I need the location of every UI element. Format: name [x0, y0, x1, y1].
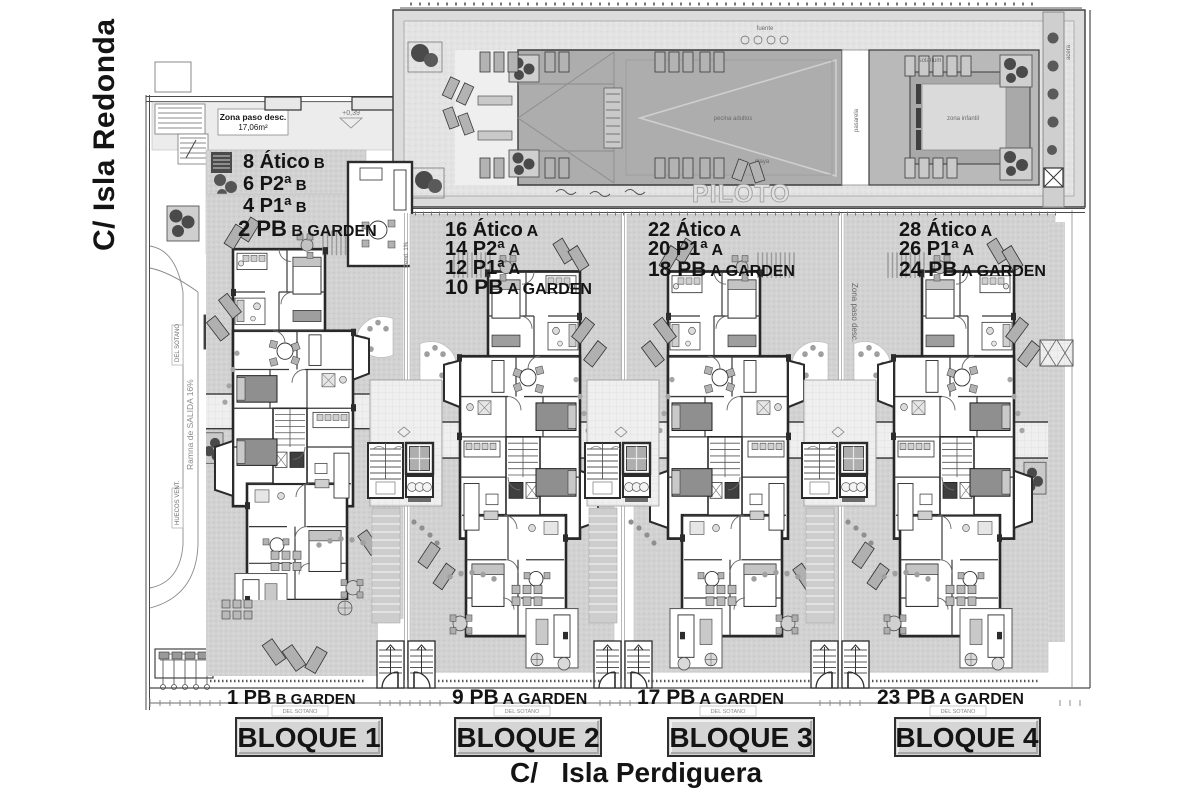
svg-text:DEL SOTANO: DEL SOTANO: [283, 709, 319, 715]
svg-text:BLOQUE 1: BLOQUE 1: [237, 722, 380, 753]
svg-text:BLOQUE 3: BLOQUE 3: [669, 722, 812, 753]
svg-text:4 P1ª B: 4 P1ª B: [243, 195, 307, 217]
svg-text:26 P1ª A: 26 P1ª A: [899, 238, 975, 260]
svg-text:PILOTO: PILOTO: [692, 180, 791, 208]
svg-text:DEL SOTANO: DEL SOTANO: [711, 709, 747, 715]
svg-text:+0,39: +0,39: [342, 110, 360, 117]
svg-text:Zona paso desc.: Zona paso desc.: [220, 112, 287, 122]
svg-text:DEL SOTANO: DEL SOTANO: [505, 709, 541, 715]
svg-text:DEL SOTANO: DEL SOTANO: [941, 709, 977, 715]
svg-text:Zona paso desc.: Zona paso desc.: [850, 283, 859, 342]
svg-text:HUECOS VENT.: HUECOS VENT.: [175, 480, 181, 525]
svg-text:Pend. 1%: Pend. 1%: [404, 241, 410, 268]
svg-text:DEL SOTANO: DEL SOTANO: [175, 324, 181, 362]
svg-text:zona infantil: zona infantil: [947, 116, 979, 122]
svg-text:Ramna de SALIDA 16%: Ramna de SALIDA 16%: [185, 379, 195, 470]
svg-text:BLOQUE 4: BLOQUE 4: [895, 722, 1039, 753]
svg-text:C/ Isla Perdiguera: C/ Isla Perdiguera: [510, 757, 763, 788]
svg-text:20 P1ª A: 20 P1ª A: [648, 238, 724, 260]
svg-text:BLOQUE 2: BLOQUE 2: [456, 722, 599, 753]
svg-text:fuente: fuente: [757, 26, 774, 32]
svg-text:C/ Isla Redonda: C/ Isla Redonda: [88, 18, 121, 251]
svg-text:pecina adultos: pecina adultos: [714, 116, 753, 122]
svg-text:solarium: solarium: [919, 58, 942, 64]
svg-text:17,06m²: 17,06m²: [238, 123, 268, 132]
svg-text:pasarela: pasarela: [854, 108, 860, 132]
svg-text:acera: acera: [1066, 44, 1072, 60]
svg-text:6 P2ª B: 6 P2ª B: [243, 173, 307, 195]
